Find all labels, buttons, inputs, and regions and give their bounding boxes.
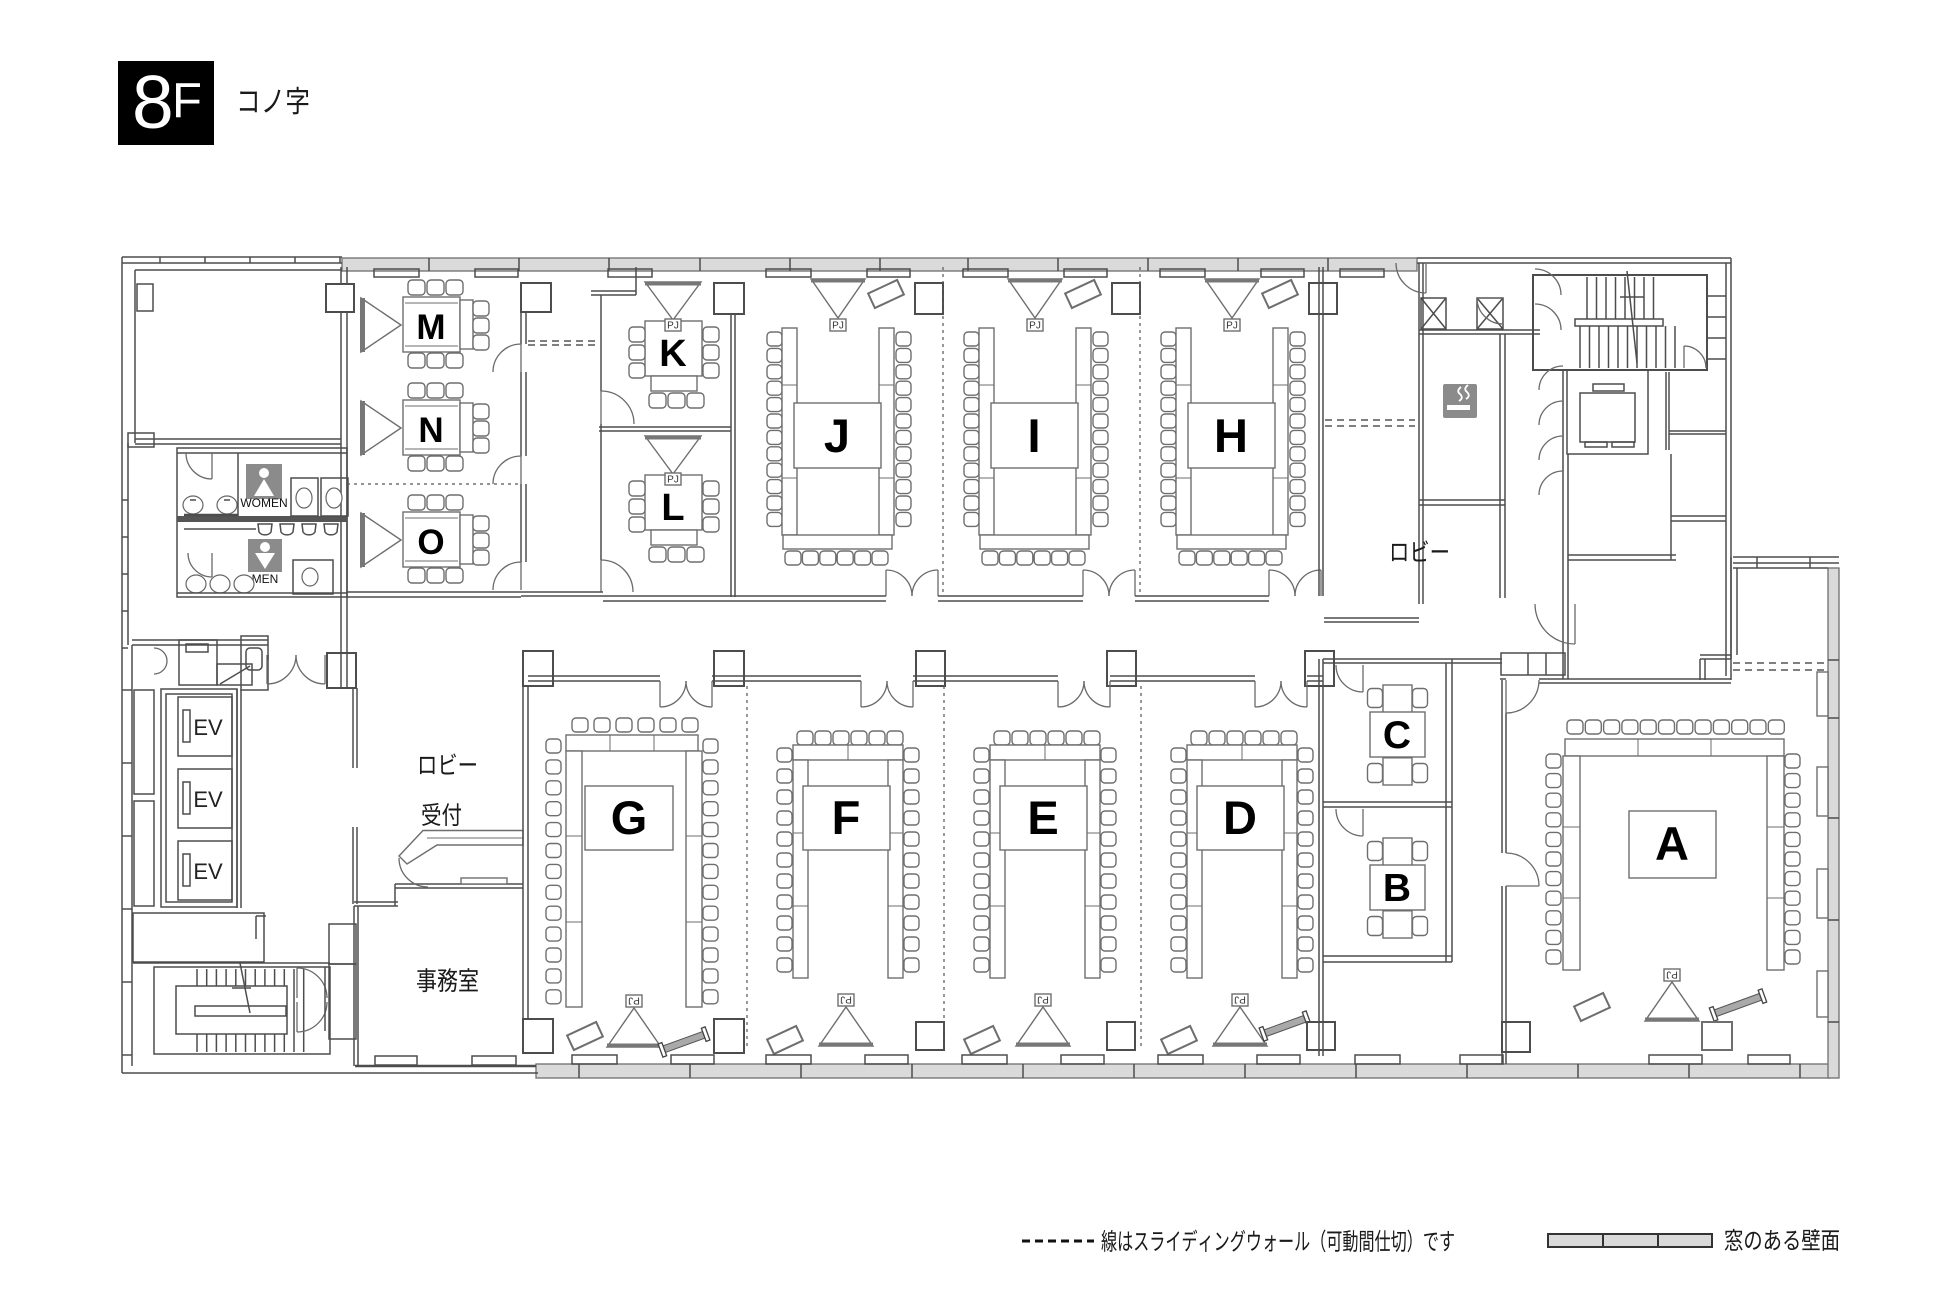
svg-text:EV: EV [193, 859, 223, 884]
svg-text:H: H [1214, 409, 1248, 462]
svg-text:L: L [661, 487, 684, 529]
svg-text:K: K [659, 333, 687, 375]
svg-text:G: G [611, 791, 648, 844]
svg-text:F: F [172, 74, 202, 128]
svg-text:MEN: MEN [252, 572, 279, 586]
svg-text:PJ: PJ [1029, 321, 1041, 332]
svg-text:D: D [1223, 791, 1257, 844]
svg-text:PJ: PJ [667, 475, 679, 486]
svg-text:PJ: PJ [840, 994, 852, 1005]
svg-text:C: C [1383, 714, 1411, 757]
svg-text:A: A [1655, 817, 1689, 870]
svg-text:O: O [417, 523, 444, 562]
svg-text:WOMEN: WOMEN [240, 496, 287, 510]
svg-text:M: M [416, 308, 445, 347]
svg-text:F: F [832, 791, 861, 844]
svg-text:PJ: PJ [667, 321, 679, 332]
svg-text:B: B [1383, 867, 1411, 910]
svg-text:I: I [1027, 409, 1040, 462]
svg-text:PJ: PJ [832, 321, 844, 332]
svg-text:EV: EV [193, 715, 223, 740]
svg-text:PJ: PJ [1666, 969, 1678, 980]
svg-text:PJ: PJ [628, 995, 640, 1006]
svg-text:PJ: PJ [1037, 994, 1049, 1005]
svg-text:PJ: PJ [1226, 321, 1238, 332]
svg-text:PJ: PJ [1234, 994, 1246, 1005]
svg-text:8: 8 [132, 60, 174, 144]
svg-text:E: E [1027, 791, 1058, 844]
svg-text:EV: EV [193, 787, 223, 812]
svg-text:J: J [824, 409, 850, 462]
svg-text:N: N [418, 411, 443, 450]
